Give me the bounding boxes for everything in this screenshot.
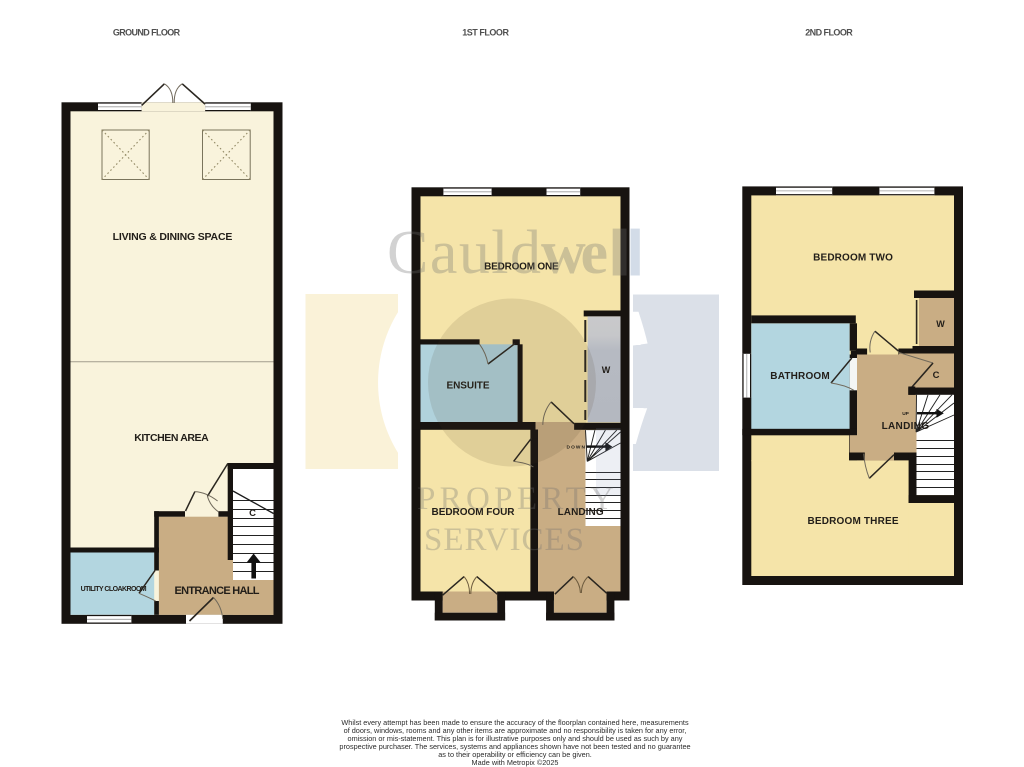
svg-text:C: C [249,508,256,519]
svg-text:C: C [933,370,940,381]
svg-text:BEDROOM TWO: BEDROOM TWO [813,252,893,263]
svg-text:BEDROOM THREE: BEDROOM THREE [808,516,899,527]
svg-text:LIVING & DINING SPACE: LIVING & DINING SPACE [113,231,233,243]
svg-text:W: W [602,365,611,375]
svg-text:Made with Metropix ©2025: Made with Metropix ©2025 [472,758,559,767]
svg-text:DOWN: DOWN [567,445,586,451]
svg-text:SERVICES: SERVICES [424,522,584,558]
svg-text:2ND FLOOR: 2ND FLOOR [805,27,853,37]
svg-text:BATHROOM: BATHROOM [770,371,829,382]
svg-text:ENTRANCE HALL: ENTRANCE HALL [175,585,260,597]
svg-text:we: we [541,219,608,287]
svg-text:UP: UP [902,411,909,417]
svg-text:LANDING: LANDING [882,421,930,432]
svg-text:KITCHEN AREA: KITCHEN AREA [134,432,209,444]
svg-text:GROUND FLOOR: GROUND FLOOR [113,27,181,37]
svg-text:1ST FLOOR: 1ST FLOOR [462,27,509,37]
svg-text:UTILITY CLOAKROOM: UTILITY CLOAKROOM [81,586,147,593]
svg-text:W: W [936,319,945,329]
svg-text:Cauld: Cauld [387,219,541,287]
